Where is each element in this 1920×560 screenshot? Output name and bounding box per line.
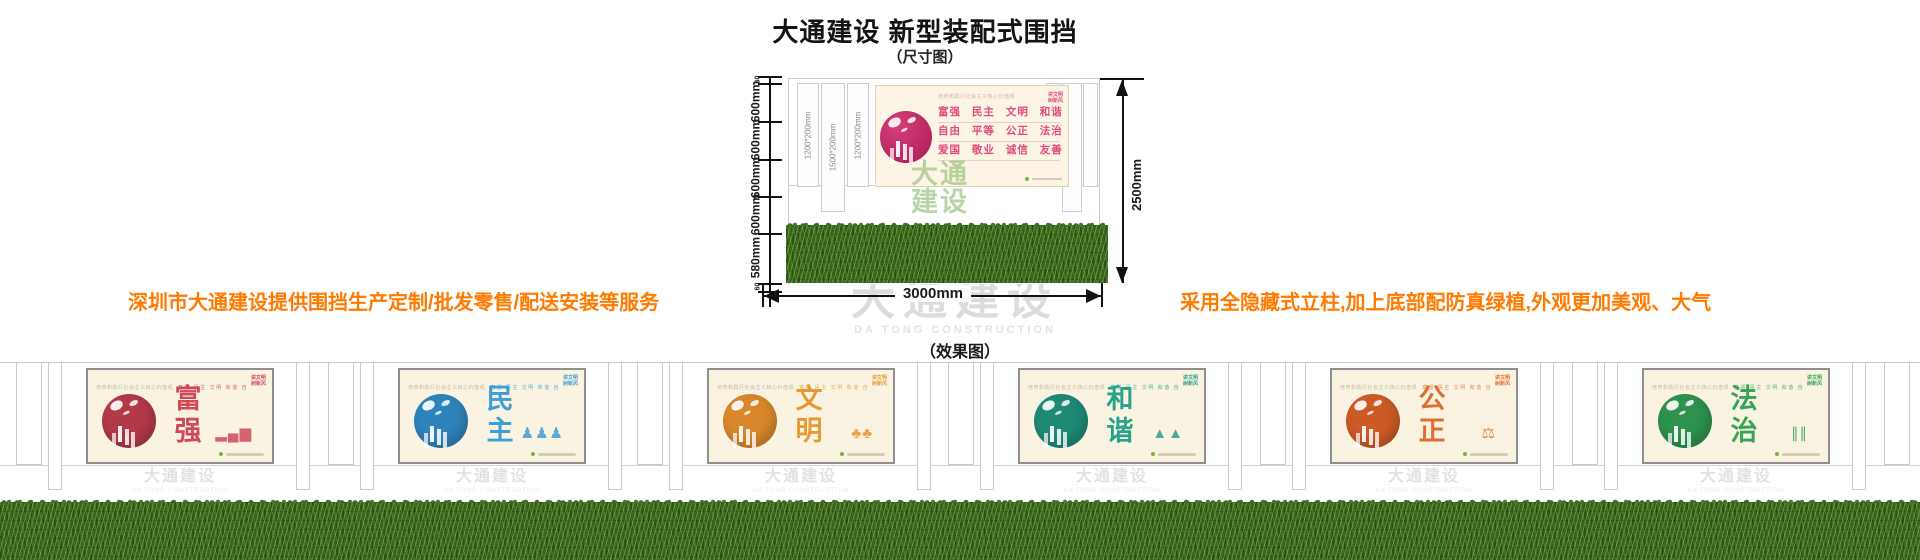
effect-figure-caption: （效果图） (920, 338, 1000, 362)
publisher-text-bar (1032, 178, 1062, 180)
value-board-wenming: 培育和践行社会主义核心价值观富强 民主 文明 和谐 自由 平等 公正 法治 爱国… (707, 368, 895, 464)
board-footer (1775, 452, 1820, 456)
value-word: 和谐 (1104, 383, 1136, 448)
publisher-dot-icon (219, 452, 223, 456)
value-board-gongzheng: 培育和践行社会主义核心价值观富强 民主 文明 和谐 自由 平等 公正 法治 爱国… (1330, 368, 1518, 464)
value-board-minzhu: 培育和践行社会主义核心价值观富强 民主 文明 和谐 自由 平等 公正 法治 爱国… (398, 368, 586, 464)
value-board-hexie: 培育和践行社会主义核心价值观富强 民主 文明 和谐 自由 平等 公正 法治 爱国… (1018, 368, 1206, 464)
board-footer (219, 452, 264, 456)
board-slogan: 培育和践行社会主义核心价值观 (1340, 385, 1417, 391)
board-face: 培育和践行社会主义核心价值观富强 民主 文明 和谐 自由 平等 公正 法治 爱国… (398, 368, 586, 464)
values-row: 富强 民主 文明 和谐 (938, 104, 1060, 123)
fence-post-leg (980, 362, 994, 490)
dimension-diagram: 60 600mm 600mm 600mm 600mm 580mm 60 1200… (700, 70, 1180, 382)
board-header: 培育和践行社会主义核心价值观富强 民主 文明 和谐 自由 平等 公正 法治 爱国… (1340, 376, 1490, 394)
fence-column: 1200*200mm (847, 83, 869, 187)
board-badge: 讲文明树新风 (1495, 375, 1510, 387)
column-size-label: 1200*200mm (854, 111, 863, 159)
publisher-dot-icon (1151, 452, 1155, 456)
fence-post (1572, 362, 1598, 465)
column-size-label: 1200*200mm (804, 111, 813, 159)
banner-footer (1025, 177, 1062, 181)
fence-post-leg (1852, 362, 1866, 490)
value-word: 文明 (793, 383, 825, 448)
dimension-figure-caption: （尺寸图） (887, 46, 962, 67)
publisher-text-bar (847, 453, 885, 456)
board-watermark: 大通建设DA TONG CONSTRUCTION (398, 469, 586, 499)
value-board-fazhi: 培育和践行社会主义核心价值观富强 民主 文明 和谐 自由 平等 公正 法治 爱国… (1642, 368, 1830, 464)
paper-cut-circle-art (1346, 394, 1400, 448)
board-header: 培育和践行社会主义核心价值观富强 民主 文明 和谐 自由 平等 公正 法治 爱国… (408, 376, 558, 394)
diagram-hedge (786, 225, 1108, 283)
publisher-text-bar (1158, 453, 1196, 456)
publisher-text-bar (1470, 453, 1508, 456)
fence-post (16, 362, 42, 465)
board-header: 培育和践行社会主义核心价值观富强 民主 文明 和谐 自由 平等 公正 法治 爱国… (1652, 376, 1802, 394)
motif-icon: ▂▄▆ (215, 424, 252, 442)
motif-icon: ∥∥ (1791, 424, 1808, 442)
fence-column: 1500*200mm (821, 83, 845, 212)
paper-cut-circle-art (723, 394, 777, 448)
paper-cut-circle-art (1034, 394, 1088, 448)
board-slogan: 培育和践行社会主义核心价值观 (408, 385, 485, 391)
board-badge: 讲文明树新风 (1807, 375, 1822, 387)
column-size-label: 1500*200mm (829, 124, 838, 172)
banner-badge: 讲文明 树新风 (1048, 92, 1063, 104)
board-badge: 讲文明树新风 (872, 375, 887, 387)
fence-post-leg (669, 362, 683, 490)
fence-post-leg (48, 362, 62, 490)
values-row: 自由 平等 公正 法治 (938, 123, 1060, 142)
publisher-dot-icon (531, 452, 535, 456)
value-word: 法治 (1728, 383, 1760, 448)
board-watermark: 大通建设DA TONG CONSTRUCTION (86, 469, 274, 499)
height-dimension-line (1122, 80, 1124, 283)
left-dimension-line (769, 76, 771, 307)
board-face: 培育和践行社会主义核心价值观富强 民主 文明 和谐 自由 平等 公正 法治 爱国… (1330, 368, 1518, 464)
board-footer (1151, 452, 1196, 456)
board-face: 培育和践行社会主义核心价值观富强 民主 文明 和谐 自由 平等 公正 法治 爱国… (1018, 368, 1206, 464)
publisher-text-bar (226, 453, 264, 456)
paper-cut-circle-art (880, 111, 932, 163)
feature-note: 采用全隐藏式立柱,加上底部配防真绿植,外观更加美观、大气 (1180, 286, 1711, 315)
fence-post (1884, 362, 1910, 465)
fence-post-leg (360, 362, 374, 490)
board-footer (840, 452, 885, 456)
board-watermark: 大通建设DA TONG CONSTRUCTION (707, 469, 895, 499)
fence-post (328, 362, 354, 465)
fence-post-leg (1292, 362, 1306, 490)
fence-post-leg (1228, 362, 1242, 490)
publisher-dot-icon (1025, 177, 1029, 181)
fence-column: 1200*200mm (797, 83, 819, 187)
dim-arrow-up-icon (1116, 80, 1128, 96)
paper-cut-circle-art (102, 394, 156, 448)
dim-arrow-down-icon (1116, 267, 1128, 283)
board-header: 培育和践行社会主义核心价值观富强 民主 文明 和谐 自由 平等 公正 法治 爱国… (96, 376, 246, 394)
paper-cut-circle-art (1658, 394, 1712, 448)
fence-post-leg (1604, 362, 1618, 490)
board-watermark: 大通建设DA TONG CONSTRUCTION (1330, 469, 1518, 499)
fence-post-leg (296, 362, 310, 490)
board-slogan: 培育和践行社会主义核心价值观 (717, 385, 794, 391)
dim-label-segment: 580mm (750, 236, 763, 280)
dim-label-segment: 600mm (750, 193, 763, 237)
motif-icon: ♣♣ (851, 425, 873, 442)
fence-post (637, 362, 663, 465)
board-slogan: 培育和践行社会主义核心价值观 (1652, 385, 1729, 391)
board-slogan: 培育和践行社会主义核心价值观 (1028, 385, 1105, 391)
board-badge: 讲文明树新风 (251, 375, 266, 387)
publisher-dot-icon (1775, 452, 1779, 456)
board-face: 培育和践行社会主义核心价值观富强 民主 文明 和谐 自由 平等 公正 法治 爱国… (1642, 368, 1830, 464)
board-badge: 讲文明树新风 (563, 375, 578, 387)
datong-logo-watermark: 大通 建设 (890, 160, 990, 216)
height-dim-label: 2500mm (1129, 153, 1143, 217)
board-header: 培育和践行社会主义核心价值观富强 民主 文明 和谐 自由 平等 公正 法治 爱国… (717, 376, 867, 394)
dim-extension-line (1101, 283, 1103, 307)
value-word: 民主 (484, 383, 516, 448)
value-word: 富强 (172, 383, 204, 448)
service-note: 深圳市大通建设提供围挡生产定制/批发零售/配送安装等服务 (128, 286, 659, 315)
fence-post (1260, 362, 1286, 465)
publisher-dot-icon (840, 452, 844, 456)
publisher-text-bar (538, 453, 576, 456)
publisher-text-bar (1782, 453, 1820, 456)
fence-rail-line (0, 465, 1920, 466)
poster: 大通建设 新型装配式围挡 （尺寸图） 大通建设 DA TONG CONSTRUC… (0, 0, 1920, 560)
board-footer (531, 452, 576, 456)
banner-slogan-header: 培育和践行社会主义核心价值观 (938, 93, 1015, 100)
board-slogan: 培育和践行社会主义核心价值观 (96, 385, 173, 391)
board-footer (1463, 452, 1508, 456)
fence-post-leg (608, 362, 622, 490)
fence-post-leg (917, 362, 931, 490)
fence-post (948, 362, 974, 465)
grass-hedge (0, 502, 1920, 560)
dim-arrow-right-icon (1086, 289, 1101, 303)
motif-icon: ⚖ (1482, 424, 1496, 442)
motif-icon: ♟♟♟ (521, 424, 564, 442)
board-face: 培育和践行社会主义核心价值观富强 民主 文明 和谐 自由 平等 公正 法治 爱国… (707, 368, 895, 464)
value-board-fuqiang: 培育和践行社会主义核心价值观富强 民主 文明 和谐 自由 平等 公正 法治 爱国… (86, 368, 274, 464)
value-word: 公正 (1416, 383, 1448, 448)
paper-cut-circle-art (414, 394, 468, 448)
board-watermark: 大通建设DA TONG CONSTRUCTION (1018, 469, 1206, 499)
width-dim-label: 3000mm (895, 285, 971, 302)
board-face: 培育和践行社会主义核心价值观富强 民主 文明 和谐 自由 平等 公正 法治 爱国… (86, 368, 274, 464)
dim-arrow-left-icon (764, 289, 779, 303)
board-header: 培育和践行社会主义核心价值观富强 民主 文明 和谐 自由 平等 公正 法治 爱国… (1028, 376, 1178, 394)
board-badge: 讲文明树新风 (1183, 375, 1198, 387)
publisher-dot-icon (1463, 452, 1467, 456)
board-watermark: 大通建设DA TONG CONSTRUCTION (1642, 469, 1830, 499)
page-title: 大通建设 新型装配式围挡 (772, 12, 1077, 49)
motif-icon: ▲▲ (1152, 425, 1184, 442)
fence-column (1083, 83, 1098, 187)
fence-post-leg (1540, 362, 1554, 490)
